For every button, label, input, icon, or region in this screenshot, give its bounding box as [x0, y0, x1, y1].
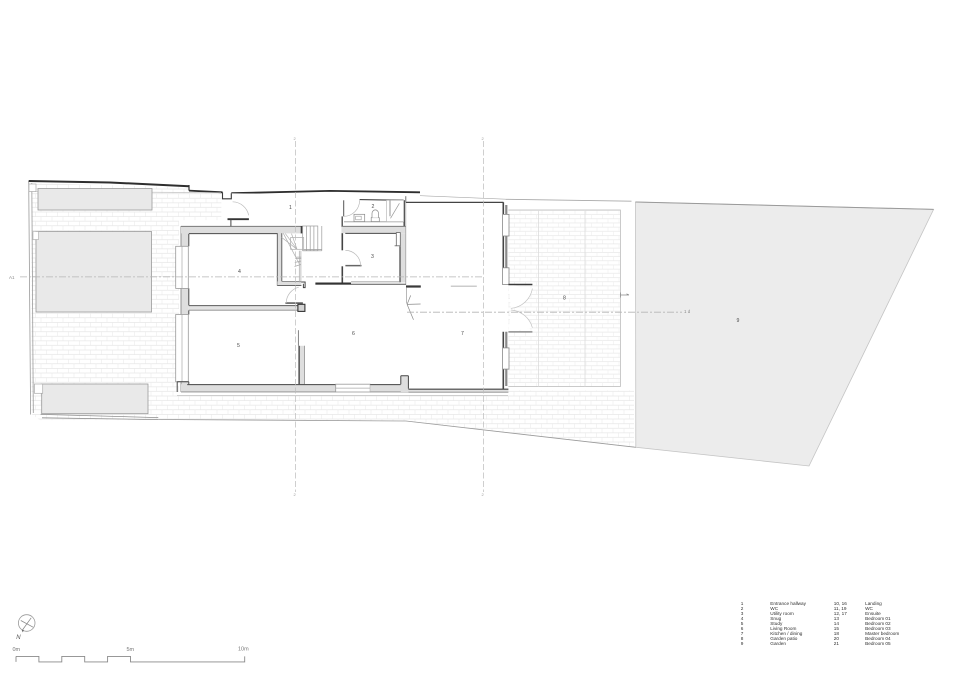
svg-text:9: 9	[737, 318, 740, 324]
svg-text:4: 4	[238, 269, 241, 275]
svg-text:21: 21	[834, 641, 840, 646]
svg-text:6: 6	[352, 331, 355, 337]
svg-text:1: 1	[289, 205, 292, 211]
svg-text:A1: A1	[9, 275, 15, 280]
svg-text:1 d: 1 d	[684, 309, 691, 314]
svg-text:8: 8	[563, 296, 566, 302]
svg-text:7: 7	[461, 331, 464, 337]
svg-text:Bedroom 05: Bedroom 05	[865, 641, 891, 646]
svg-text:0m: 0m	[13, 647, 21, 653]
svg-text:N: N	[16, 635, 21, 641]
svg-text:Garden: Garden	[770, 641, 786, 646]
svg-text:9: 9	[741, 641, 744, 646]
svg-text:5m: 5m	[127, 647, 135, 653]
svg-text:2: 2	[372, 204, 375, 210]
svg-text:3: 3	[371, 254, 374, 260]
svg-text:10m: 10m	[238, 647, 249, 653]
svg-text:5: 5	[237, 343, 240, 349]
